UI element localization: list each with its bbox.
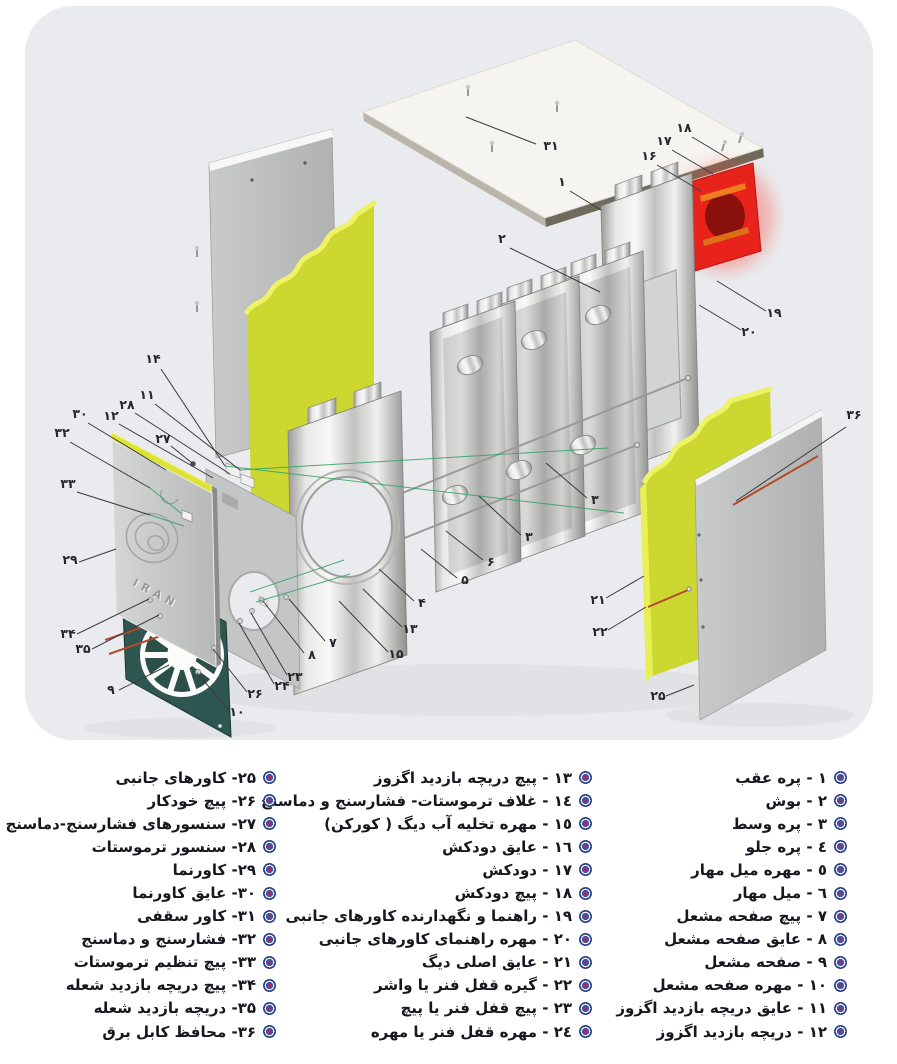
part-list-item: ٥ - مهره میل مهار: [616, 858, 847, 881]
part-list-item: ٢٠ - مهره راهنمای کاورهای جانبی: [261, 928, 592, 951]
bullet-target-icon: [263, 979, 276, 992]
part-label: ۲۶- پیچ خودکار: [148, 792, 256, 810]
part-label: ٣ - پره وسط: [732, 815, 827, 833]
part-label: ٢١ - عایق اصلی دیگ: [422, 953, 572, 971]
part-label: ٨ - عایق صفحه مشعل: [664, 930, 827, 948]
part-list-item: ۳۱- کاور سقفی: [5, 905, 276, 928]
callout-number: ۳۳: [60, 476, 76, 491]
bullet-target-icon: [263, 817, 276, 830]
parts-column-25-36: ۲۵- کاورهای جانبی۲۶- پیچ خودکار۲۷- سنسور…: [5, 766, 276, 1043]
callout-number: ۳۵: [75, 641, 91, 656]
part-label: ۲۵- کاورهای جانبی: [116, 769, 256, 787]
part-list-item: ٨ - عایق صفحه مشعل: [616, 928, 847, 951]
bullet-target-icon: [263, 1025, 276, 1038]
callout-number: ۱۳: [402, 621, 418, 636]
part-list-item: ٢٢ - گیره قفل فنر یا واشر: [261, 974, 592, 997]
callout-number: ۲۰: [741, 324, 756, 339]
bullet-target-icon: [834, 956, 847, 969]
part-list-item: ۳۴- پیچ دریچه بازدید شعله: [5, 974, 276, 997]
part-list-item: ٢٤ - مهره قفل فنر یا مهره: [261, 1020, 592, 1043]
bullet-target-icon: [579, 956, 592, 969]
part-label: ٢٣ - پیچ قفل فنر یا پیچ: [400, 999, 572, 1017]
bullet-target-icon: [579, 771, 592, 784]
bullet-target-icon: [579, 887, 592, 900]
part-list-item: ١٧ - دودکش: [261, 858, 592, 881]
bullet-target-icon: [834, 817, 847, 830]
part-label: ٧ - پیچ صفحه مشعل: [677, 907, 827, 925]
callout-number: ۲: [498, 231, 506, 246]
bullet-target-icon: [834, 910, 847, 923]
bullet-target-icon: [834, 933, 847, 946]
part-list-item: ٦ - میل مهار: [616, 881, 847, 904]
callout-number: ۱۸: [676, 120, 692, 135]
part-list-item: ۲۵- کاورهای جانبی: [5, 766, 276, 789]
bullet-target-icon: [579, 840, 592, 853]
part-list-item: ٢١ - عایق اصلی دیگ: [261, 951, 592, 974]
part-label: ١٧ - دودکش: [482, 861, 572, 879]
part-label: ٢٤ - مهره قفل فنر یا مهره: [371, 1023, 572, 1041]
bullet-target-icon: [834, 794, 847, 807]
exploded-view-illustration: IRAN IRAN: [0, 0, 897, 750]
part-label: ٢ - بوش: [765, 792, 827, 810]
callout-number: ۳۱: [543, 138, 558, 153]
part-label: ٤ - پره جلو: [746, 838, 827, 856]
part-list-item: ٧ - پیچ صفحه مشعل: [616, 905, 847, 928]
part-list-item: ١٣ - پیچ دریچه بازدید اگزوز: [261, 766, 592, 789]
bullet-target-icon: [579, 933, 592, 946]
part-list-item: ۳۲- فشارسنج و دماسنج: [5, 928, 276, 951]
part-list-item: ١٥ - مهره تخلیه آب دیگ ( کورکن): [261, 812, 592, 835]
part-list-item: ١ - پره عقب: [616, 766, 847, 789]
part-label: ۳۲- فشارسنج و دماسنج: [81, 930, 256, 948]
part-list-item: ۲۹- کاورنما: [5, 858, 276, 881]
callout-number: ۱۱: [139, 387, 154, 402]
part-list-item: ۳۳- پیچ تنظیم ترموستات: [5, 951, 276, 974]
part-label: ۳۵- دریچه بازدید شعله: [94, 999, 256, 1017]
part-label: ۳۶- محافظ کابل برق: [102, 1023, 256, 1041]
bullet-target-icon: [834, 979, 847, 992]
part-label: ۲۸- سنسور ترموستات: [92, 838, 256, 856]
callout-number: ۲۵: [650, 688, 666, 703]
bullet-target-icon: [579, 1002, 592, 1015]
callout-number: ۱۶: [641, 148, 656, 163]
callout-number: ۳: [591, 492, 599, 507]
part-label: ١٠ - مهره صفحه مشعل: [653, 976, 827, 994]
part-list-item: ۳۶- محافظ کابل برق: [5, 1020, 276, 1043]
page: IRAN IRAN: [0, 0, 897, 1064]
callout-number: ۳۶: [846, 407, 861, 422]
part-label: ۳۰- عایق کاورنما: [132, 884, 256, 902]
bullet-target-icon: [263, 1002, 276, 1015]
part-list-item: ۳۰- عایق کاورنما: [5, 881, 276, 904]
bullet-target-icon: [834, 1002, 847, 1015]
bullet-target-icon: [834, 887, 847, 900]
part-label: ١٩ - راهنما و نگهدارنده کاورهای جانبی: [285, 907, 572, 925]
bullet-target-icon: [834, 840, 847, 853]
callout-number: ۸: [308, 647, 316, 662]
part-list-item: ٩ - صفحه مشعل: [616, 951, 847, 974]
callout-number: ۱: [558, 174, 566, 189]
parts-column-1-12: ١ - پره عقب٢ - بوش٣ - پره وسط٤ - پره جلو…: [616, 766, 847, 1043]
bullet-target-icon: [263, 910, 276, 923]
part-list-item: ٤ - پره جلو: [616, 835, 847, 858]
bullet-target-icon: [263, 794, 276, 807]
part-label: ٢٢ - گیره قفل فنر یا واشر: [374, 976, 572, 994]
callout-number: ۳۰: [72, 406, 87, 421]
part-list-item: ۲۶- پیچ خودکار: [5, 789, 276, 812]
callout-number: ۲۲: [592, 624, 608, 639]
part-label: ١٣ - پیچ دریچه بازدید اگزوز: [374, 769, 572, 787]
bullet-target-icon: [834, 1025, 847, 1038]
bullet-target-icon: [579, 979, 592, 992]
callout-number: ۴: [418, 595, 426, 610]
bullet-target-icon: [263, 840, 276, 853]
bullet-target-icon: [579, 910, 592, 923]
callout-number: ۲۹: [62, 552, 78, 567]
part-label: ١٥ - مهره تخلیه آب دیگ ( کورکن): [324, 815, 572, 833]
callout-number: ۵: [461, 572, 469, 587]
part-label: ١١ - عایق دریچه بازدید اگزوز: [616, 999, 827, 1017]
middle-fin-section: [430, 292, 521, 592]
bullet-target-icon: [263, 956, 276, 969]
bullet-target-icon: [263, 771, 276, 784]
callout-number: ۳: [525, 529, 533, 544]
part-list-item: ٣ - پره وسط: [616, 812, 847, 835]
part-list-item: ١٤ - غلاف ترموستات- فشارسنج و دماسنج: [261, 789, 592, 812]
part-label: ٩ - صفحه مشعل: [704, 953, 827, 971]
callout-number: ۱۲: [103, 408, 119, 423]
part-label: ١٦ - عایق دودکش: [442, 838, 572, 856]
part-list-item: ٢ - بوش: [616, 789, 847, 812]
part-label: ١٤ - غلاف ترموستات- فشارسنج و دماسنج: [261, 792, 572, 810]
callout-number: ۲۱: [590, 592, 605, 607]
part-label: ۳۳- پیچ تنظیم ترموستات: [74, 953, 256, 971]
part-label: ٦ - میل مهار: [734, 884, 827, 902]
part-list-item: ۲۷- سنسورهای فشارسنج-دماسنج: [5, 812, 276, 835]
part-label: ٢٠ - مهره راهنمای کاورهای جانبی: [319, 930, 572, 948]
part-label: ۳۴- پیچ دریچه بازدید شعله: [66, 976, 256, 994]
callout-number: ۹: [107, 682, 115, 697]
callout-number: ۳۴: [60, 626, 76, 641]
part-list-item: ٢٣ - پیچ قفل فنر یا پیچ: [261, 997, 592, 1020]
callout-number: ۳۲: [54, 425, 70, 440]
part-list-item: ١١ - عایق دریچه بازدید اگزوز: [616, 997, 847, 1020]
part-list-item: ۲۸- سنسور ترموستات: [5, 835, 276, 858]
callout-number: ۱۴: [145, 351, 161, 366]
bullet-target-icon: [579, 863, 592, 876]
bullet-target-icon: [263, 933, 276, 946]
callout-number: ۲۶: [247, 686, 262, 701]
bullet-target-icon: [834, 771, 847, 784]
callout-number: ۱۷: [656, 133, 672, 148]
floor-shadow: [665, 703, 855, 727]
parts-column-13-24: ١٣ - پیچ دریچه بازدید اگزوز١٤ - غلاف ترم…: [261, 766, 592, 1043]
part-list-item: ١٠ - مهره صفحه مشعل: [616, 974, 847, 997]
bullet-target-icon: [579, 1025, 592, 1038]
part-label: ۳۱- کاور سقفی: [137, 907, 256, 925]
callout-number: ۲۳: [287, 669, 303, 684]
part-list-item: ١٦ - عایق دودکش: [261, 835, 592, 858]
part-list-item: ١٩ - راهنما و نگهدارنده کاورهای جانبی: [261, 905, 592, 928]
part-label: ۲۷- سنسورهای فشارسنج-دماسنج: [5, 815, 256, 833]
callout-number: ۲۷: [155, 431, 171, 446]
part-list-item: ١٢ - دریچه بازدید اگزوز: [616, 1020, 847, 1043]
part-label: ١٢ - دریچه بازدید اگزوز: [657, 1023, 827, 1041]
bullet-target-icon: [263, 863, 276, 876]
bullet-target-icon: [834, 863, 847, 876]
part-list-item: ۳۵- دریچه بازدید شعله: [5, 997, 276, 1020]
bullet-target-icon: [579, 817, 592, 830]
chimney-red-duct: [687, 163, 761, 271]
callout-number: ۱۵: [388, 646, 404, 661]
part-label: ٥ - مهره میل مهار: [691, 861, 827, 879]
callout-number: ۶: [487, 554, 495, 569]
callout-number: ۱۹: [766, 305, 782, 320]
floor-shadow: [85, 718, 275, 738]
part-list-item: ١٨ - پیچ دودکش: [261, 881, 592, 904]
callout-number: ۲۸: [119, 397, 135, 412]
bullet-target-icon: [263, 887, 276, 900]
bullet-target-icon: [579, 794, 592, 807]
part-label: ١ - پره عقب: [735, 769, 827, 787]
callout-number: ۱۰: [229, 704, 244, 719]
callout-number: ۷: [329, 635, 337, 650]
part-label: ۲۹- کاورنما: [173, 861, 256, 879]
part-label: ١٨ - پیچ دودکش: [455, 884, 572, 902]
